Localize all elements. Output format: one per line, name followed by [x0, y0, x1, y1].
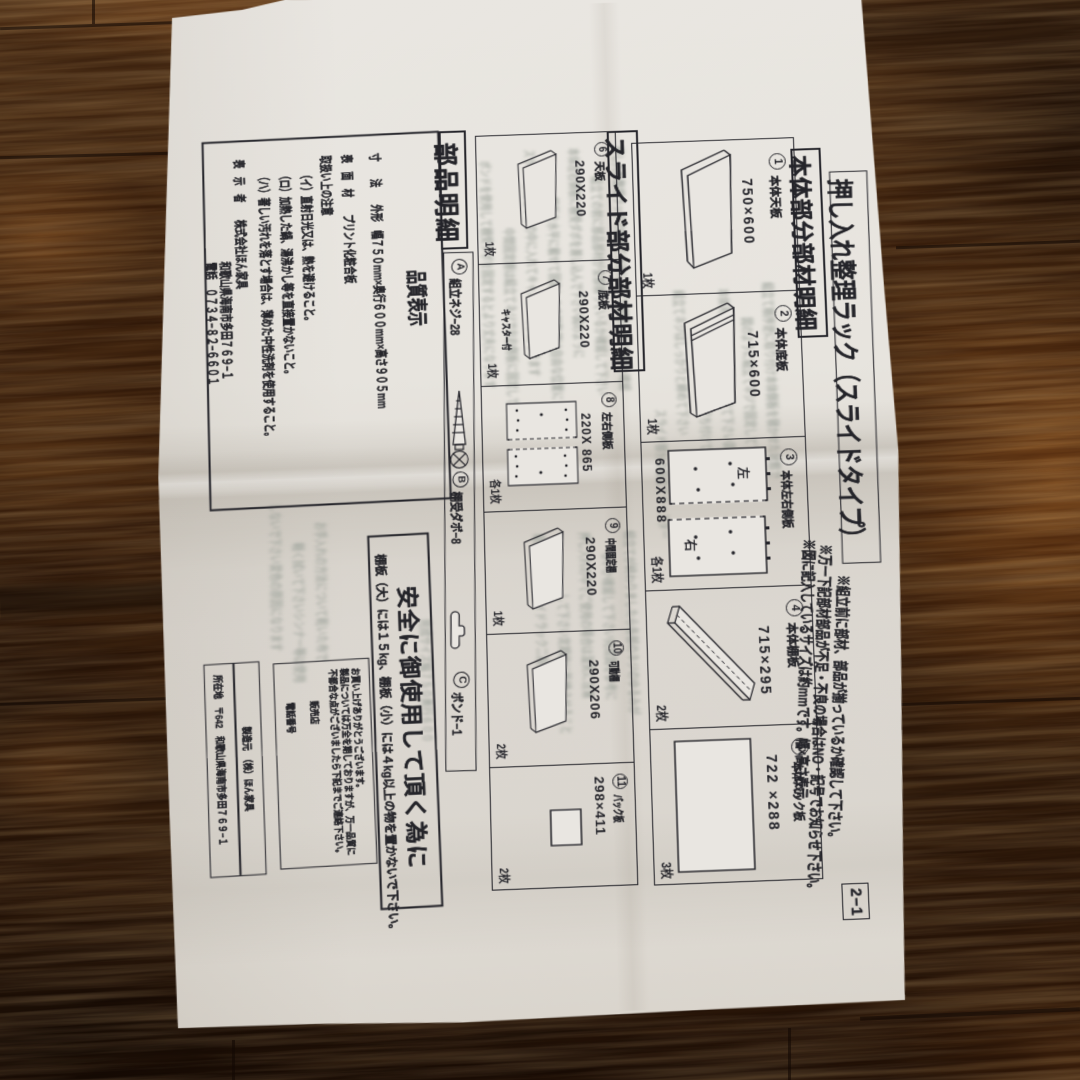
svg-text:左: 左 [735, 466, 750, 480]
svg-text:右: 右 [682, 538, 697, 552]
